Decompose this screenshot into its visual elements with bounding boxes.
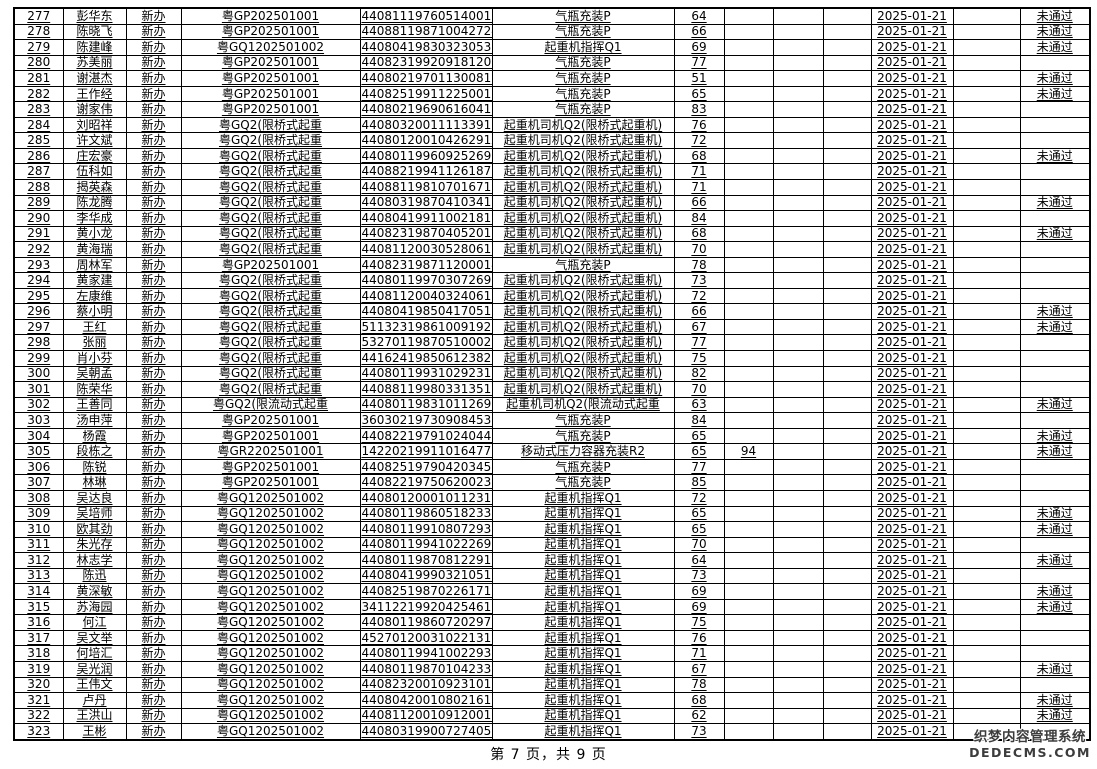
cell-result: 未通过	[1020, 522, 1090, 538]
cell-empty-1	[773, 117, 823, 133]
cell-date: 2025-01-21	[871, 211, 953, 227]
cell-empty-1	[773, 319, 823, 335]
cell-empty-2	[823, 553, 871, 569]
cell-cert-code: 粤GQ1202501002	[181, 630, 360, 646]
table-row: 302王善同新办粤GQ2(限流动式起重440801198310112699起重机…	[14, 397, 1090, 413]
cell-id-number: 440823198711200014	[360, 257, 492, 273]
cell-empty-2	[823, 319, 871, 335]
cell-id-number: 532701198705100025	[360, 335, 492, 351]
cell-id-number: 440881198107016716	[360, 180, 492, 196]
cell-theory-score: 70	[674, 537, 724, 553]
cell-id-number: 440801198607202978	[360, 615, 492, 631]
cell-name: 吴培师	[63, 506, 126, 522]
cell-apply-type: 新办	[126, 553, 181, 569]
cell-empty-1	[773, 553, 823, 569]
cell-result	[1020, 351, 1090, 367]
cell-project: 起重机司机Q2(限桥式起重机)	[492, 351, 674, 367]
cell-cert-code: 粤GQ2(限桥式起重	[181, 195, 360, 211]
cell-empty-2	[823, 522, 871, 538]
cell-row-number: 317	[14, 630, 63, 646]
cell-row-number: 282	[14, 86, 63, 102]
cell-id-number: 440801198310112699	[360, 397, 492, 413]
cell-date: 2025-01-21	[871, 40, 953, 56]
cell-row-number: 285	[14, 133, 63, 149]
cell-empty-3	[953, 459, 1020, 475]
cell-apply-type: 新办	[126, 164, 181, 180]
cell-practical-score	[724, 475, 773, 491]
table-row: 293周林军新办粤GP202501001440823198711200014气瓶…	[14, 257, 1090, 273]
cell-project: 起重机指挥Q1	[492, 693, 674, 709]
cell-empty-1	[773, 459, 823, 475]
cell-apply-type: 新办	[126, 708, 181, 724]
cell-cert-code: 粤GQ1202501002	[181, 584, 360, 600]
table-row: 311朱光存新办粤GQ1202501002440801199410222697起…	[14, 537, 1090, 553]
cell-practical-score	[724, 428, 773, 444]
cell-result	[1020, 273, 1090, 289]
cell-id-number: 440882199411261872	[360, 164, 492, 180]
cell-project: 气瓶充装P	[492, 71, 674, 87]
cell-apply-type: 新办	[126, 413, 181, 429]
cell-date: 2025-01-21	[871, 304, 953, 320]
cell-row-number: 302	[14, 397, 63, 413]
cell-theory-score: 72	[674, 288, 724, 304]
cell-cert-code: 粤GQ1202501002	[181, 615, 360, 631]
cell-row-number: 314	[14, 584, 63, 600]
cell-theory-score: 70	[674, 242, 724, 258]
cell-result: 未通过	[1020, 24, 1090, 40]
cell-name: 陈龙腾	[63, 195, 126, 211]
cell-empty-3	[953, 568, 1020, 584]
cell-empty-1	[773, 428, 823, 444]
cell-project: 气瓶充装P	[492, 428, 674, 444]
table-row: 304杨霞新办粤GP202501001440822197910240448气瓶充…	[14, 428, 1090, 444]
cell-empty-2	[823, 133, 871, 149]
cell-practical-score	[724, 273, 773, 289]
cell-name: 左康维	[63, 288, 126, 304]
cell-date: 2025-01-21	[871, 226, 953, 242]
cell-empty-1	[773, 693, 823, 709]
cell-date: 2025-01-21	[871, 273, 953, 289]
cell-id-number: 440822197910240448	[360, 428, 492, 444]
table-row: 301陈荣华新办粤GQ2(限桥式起重440881199803313516起重机司…	[14, 382, 1090, 398]
cell-id-number: 440803199007274051	[360, 724, 492, 740]
cell-row-number: 323	[14, 724, 63, 740]
cell-apply-type: 新办	[126, 24, 181, 40]
cell-empty-3	[953, 319, 1020, 335]
cell-result	[1020, 490, 1090, 506]
cell-cert-code: 粤GP202501001	[181, 428, 360, 444]
cell-empty-2	[823, 568, 871, 584]
cell-apply-type: 新办	[126, 288, 181, 304]
cell-apply-type: 新办	[126, 71, 181, 87]
cell-practical-score	[724, 8, 773, 24]
cell-empty-1	[773, 615, 823, 631]
cell-id-number: 440801198708122918	[360, 553, 492, 569]
cell-project: 起重机指挥Q1	[492, 724, 674, 740]
cell-empty-1	[773, 708, 823, 724]
cell-empty-3	[953, 397, 1020, 413]
cell-id-number: 440811197605140011	[360, 8, 492, 24]
cell-empty-1	[773, 288, 823, 304]
cell-practical-score	[724, 164, 773, 180]
cell-empty-2	[823, 304, 871, 320]
cell-id-number: 440804198504170511	[360, 304, 492, 320]
cell-apply-type: 新办	[126, 86, 181, 102]
cell-empty-1	[773, 568, 823, 584]
cell-date: 2025-01-21	[871, 319, 953, 335]
cell-date: 2025-01-21	[871, 366, 953, 382]
cell-id-number: 440803198704103413	[360, 195, 492, 211]
cell-theory-score: 68	[674, 148, 724, 164]
cell-id-number: 341122199204254613	[360, 599, 492, 615]
cell-apply-type: 新办	[126, 319, 181, 335]
cell-theory-score: 70	[674, 382, 724, 398]
cell-practical-score	[724, 86, 773, 102]
cell-practical-score	[724, 40, 773, 56]
cell-empty-2	[823, 646, 871, 662]
cell-date: 2025-01-21	[871, 568, 953, 584]
cell-cert-code: 粤GQ1202501002	[181, 724, 360, 740]
cell-date: 2025-01-21	[871, 646, 953, 662]
cell-id-number: 440811200305280615	[360, 242, 492, 258]
cell-result: 未通过	[1020, 148, 1090, 164]
cell-empty-2	[823, 599, 871, 615]
cell-apply-type: 新办	[126, 615, 181, 631]
cell-empty-2	[823, 444, 871, 460]
cell-practical-score	[724, 537, 773, 553]
cell-empty-2	[823, 584, 871, 600]
cell-empty-1	[773, 211, 823, 227]
cell-empty-3	[953, 475, 1020, 491]
cell-cert-code: 粤GQ2(限桥式起重	[181, 117, 360, 133]
cell-project: 起重机指挥Q1	[492, 537, 674, 553]
cell-id-number: 440823199209181203	[360, 55, 492, 71]
cell-name: 吴达良	[63, 490, 126, 506]
cell-result	[1020, 164, 1090, 180]
cell-empty-3	[953, 288, 1020, 304]
cell-empty-3	[953, 351, 1020, 367]
cell-empty-2	[823, 351, 871, 367]
cell-result	[1020, 677, 1090, 693]
cell-apply-type: 新办	[126, 382, 181, 398]
cell-row-number: 283	[14, 102, 63, 118]
cell-id-number: 440801199310292313	[360, 366, 492, 382]
cell-theory-score: 78	[674, 257, 724, 273]
cell-row-number: 295	[14, 288, 63, 304]
cell-theory-score: 63	[674, 397, 724, 413]
cms-watermark: 织梦内容管理系统 DEDECMS.COM	[969, 730, 1091, 760]
exam-results-table: 277彭华东新办粤GP202501001440811197605140011气瓶…	[13, 7, 1091, 741]
cell-practical-score	[724, 102, 773, 118]
cell-name: 王善同	[63, 397, 126, 413]
cell-project: 起重机指挥Q1	[492, 708, 674, 724]
cell-practical-score	[724, 257, 773, 273]
cell-empty-1	[773, 366, 823, 382]
cell-theory-score: 68	[674, 693, 724, 709]
cell-result: 未通过	[1020, 599, 1090, 615]
cell-empty-2	[823, 180, 871, 196]
table-row: 314黄深敏新办粤GQ1202501002440825198702261715起…	[14, 584, 1090, 600]
cell-empty-2	[823, 24, 871, 40]
cell-empty-2	[823, 630, 871, 646]
cell-practical-score	[724, 584, 773, 600]
cell-empty-1	[773, 630, 823, 646]
cell-id-number: 440804200108021610	[360, 693, 492, 709]
cell-apply-type: 新办	[126, 506, 181, 522]
table-row: 315苏海园新办粤GQ1202501002341122199204254613起…	[14, 599, 1090, 615]
cell-practical-score	[724, 304, 773, 320]
cell-name: 陈荣华	[63, 382, 126, 398]
cell-name: 揭英森	[63, 180, 126, 196]
cell-date: 2025-01-21	[871, 382, 953, 398]
cell-apply-type: 新办	[126, 661, 181, 677]
cell-empty-3	[953, 133, 1020, 149]
cell-empty-1	[773, 413, 823, 429]
cell-empty-2	[823, 677, 871, 693]
cell-theory-score: 85	[674, 475, 724, 491]
cell-name: 黄深敏	[63, 584, 126, 600]
cell-empty-2	[823, 475, 871, 491]
table-row: 288揭英森新办粤GQ2(限桥式起重440881198107016716起重机司…	[14, 180, 1090, 196]
cell-empty-3	[953, 522, 1020, 538]
cell-empty-3	[953, 24, 1020, 40]
cell-project: 起重机指挥Q1	[492, 40, 674, 56]
cell-practical-score	[724, 506, 773, 522]
cell-result	[1020, 180, 1090, 196]
cell-empty-2	[823, 226, 871, 242]
cell-theory-score: 75	[674, 351, 724, 367]
cell-row-number: 297	[14, 319, 63, 335]
cell-row-number: 293	[14, 257, 63, 273]
cell-empty-1	[773, 537, 823, 553]
cell-date: 2025-01-21	[871, 413, 953, 429]
cell-id-number: 440804198303230530	[360, 40, 492, 56]
cell-empty-3	[953, 8, 1020, 24]
cell-id-number: 440801199703072696	[360, 273, 492, 289]
cell-empty-3	[953, 117, 1020, 133]
table-row: 321卢丹新办粤GQ1202501002440804200108021610起重…	[14, 693, 1090, 709]
cell-theory-score: 65	[674, 428, 724, 444]
cell-empty-3	[953, 490, 1020, 506]
cell-empty-3	[953, 537, 1020, 553]
cell-empty-3	[953, 693, 1020, 709]
cell-row-number: 291	[14, 226, 63, 242]
cell-result: 未通过	[1020, 226, 1090, 242]
cell-empty-1	[773, 677, 823, 693]
table-row: 290李华成新办粤GQ2(限桥式起重440804199110021817起重机司…	[14, 211, 1090, 227]
cell-practical-score	[724, 661, 773, 677]
cell-apply-type: 新办	[126, 8, 181, 24]
cell-id-number: 440802197011300819	[360, 71, 492, 87]
cell-theory-score: 62	[674, 708, 724, 724]
cell-cert-code: 粤GQ1202501002	[181, 661, 360, 677]
cell-date: 2025-01-21	[871, 335, 953, 351]
cell-row-number: 284	[14, 117, 63, 133]
cell-project: 起重机司机Q2(限桥式起重机)	[492, 335, 674, 351]
cell-row-number: 278	[14, 24, 63, 40]
cell-theory-score: 73	[674, 273, 724, 289]
table-row: 323王彬新办粤GQ1202501002440803199007274051起重…	[14, 724, 1090, 740]
cell-theory-score: 69	[674, 599, 724, 615]
table-row: 312林志学新办粤GQ1202501002440801198708122918起…	[14, 553, 1090, 569]
cell-date: 2025-01-21	[871, 164, 953, 180]
cell-id-number: 440881199803313516	[360, 382, 492, 398]
cell-empty-3	[953, 506, 1020, 522]
cell-theory-score: 65	[674, 444, 724, 460]
cell-date: 2025-01-21	[871, 102, 953, 118]
cell-name: 王彬	[63, 724, 126, 740]
cell-date: 2025-01-21	[871, 397, 953, 413]
cell-empty-1	[773, 195, 823, 211]
cell-name: 王伟文	[63, 677, 126, 693]
cell-project: 起重机指挥Q1	[492, 646, 674, 662]
cell-name: 陈迅	[63, 568, 126, 584]
cell-empty-1	[773, 24, 823, 40]
cell-practical-score	[724, 71, 773, 87]
cell-empty-2	[823, 71, 871, 87]
cell-name: 吴光润	[63, 661, 126, 677]
cell-practical-score	[724, 319, 773, 335]
cell-cert-code: 粤GQ2(限桥式起重	[181, 180, 360, 196]
cell-row-number: 306	[14, 459, 63, 475]
cell-apply-type: 新办	[126, 148, 181, 164]
cell-name: 伍科如	[63, 164, 126, 180]
cell-apply-type: 新办	[126, 475, 181, 491]
table-row: 279陈建峰新办粤GQ1202501002440804198303230530起…	[14, 40, 1090, 56]
cell-id-number: 440825199112250017	[360, 86, 492, 102]
cell-empty-1	[773, 40, 823, 56]
cell-result: 未通过	[1020, 661, 1090, 677]
table-row: 317吴文举新办粤GQ1202501002452701200310221316起…	[14, 630, 1090, 646]
cell-result	[1020, 459, 1090, 475]
cell-row-number: 318	[14, 646, 63, 662]
cell-id-number: 360302197309084533	[360, 413, 492, 429]
cell-project: 起重机指挥Q1	[492, 490, 674, 506]
cell-date: 2025-01-21	[871, 661, 953, 677]
cell-empty-3	[953, 164, 1020, 180]
cell-apply-type: 新办	[126, 677, 181, 693]
cell-empty-3	[953, 413, 1020, 429]
cell-row-number: 299	[14, 351, 63, 367]
cell-cert-code: 粤GP202501001	[181, 24, 360, 40]
cell-apply-type: 新办	[126, 40, 181, 56]
watermark-cms-domain: DEDECMS.COM	[969, 745, 1091, 760]
cell-empty-1	[773, 522, 823, 538]
table-row: 277彭华东新办粤GP202501001440811197605140011气瓶…	[14, 8, 1090, 24]
cell-project: 起重机指挥Q1	[492, 506, 674, 522]
cell-cert-code: 粤GP202501001	[181, 459, 360, 475]
cell-row-number: 294	[14, 273, 63, 289]
cell-date: 2025-01-21	[871, 180, 953, 196]
cell-practical-score	[724, 24, 773, 40]
cell-id-number: 440823198704052017	[360, 226, 492, 242]
cell-result	[1020, 211, 1090, 227]
table-row: 292黄海瑞新办粤GQ2(限桥式起重440811200305280615起重机司…	[14, 242, 1090, 258]
cell-result: 未通过	[1020, 8, 1090, 24]
cell-empty-1	[773, 148, 823, 164]
cell-name: 汤申萍	[63, 413, 126, 429]
cell-project: 起重机司机Q2(限桥式起重机)	[492, 211, 674, 227]
cell-theory-score: 84	[674, 211, 724, 227]
cell-cert-code: 粤GQ1202501002	[181, 599, 360, 615]
table-row: 296蔡小明新办粤GQ2(限桥式起重440804198504170511起重机司…	[14, 304, 1090, 320]
cell-practical-score	[724, 288, 773, 304]
cell-project: 气瓶充装P	[492, 475, 674, 491]
cell-project: 起重机司机Q2(限桥式起重机)	[492, 180, 674, 196]
cell-empty-3	[953, 382, 1020, 398]
cell-empty-1	[773, 475, 823, 491]
cell-empty-2	[823, 102, 871, 118]
cell-practical-score	[724, 724, 773, 740]
cell-row-number: 289	[14, 195, 63, 211]
cell-project: 气瓶充装P	[492, 24, 674, 40]
cell-row-number: 287	[14, 164, 63, 180]
cell-practical-score	[724, 55, 773, 71]
cell-date: 2025-01-21	[871, 630, 953, 646]
cell-result	[1020, 288, 1090, 304]
cell-id-number: 440802196906160410	[360, 102, 492, 118]
cell-result	[1020, 133, 1090, 149]
cell-date: 2025-01-21	[871, 475, 953, 491]
cell-project: 移动式压力容器充装R2	[492, 444, 674, 460]
cell-empty-3	[953, 444, 1020, 460]
cell-row-number: 315	[14, 599, 63, 615]
cell-name: 蔡小明	[63, 304, 126, 320]
cell-practical-score	[724, 646, 773, 662]
cell-cert-code: 粤GQ2(限桥式起重	[181, 382, 360, 398]
cell-theory-score: 64	[674, 553, 724, 569]
cell-apply-type: 新办	[126, 335, 181, 351]
cell-date: 2025-01-21	[871, 242, 953, 258]
cell-empty-1	[773, 335, 823, 351]
cell-empty-1	[773, 102, 823, 118]
cell-empty-2	[823, 382, 871, 398]
cell-project: 起重机司机Q2(限桥式起重机)	[492, 382, 674, 398]
cell-empty-1	[773, 133, 823, 149]
cell-date: 2025-01-21	[871, 8, 953, 24]
cell-empty-2	[823, 164, 871, 180]
cell-result: 未通过	[1020, 428, 1090, 444]
cell-name: 刘昭祥	[63, 117, 126, 133]
cell-row-number: 313	[14, 568, 63, 584]
cell-apply-type: 新办	[126, 117, 181, 133]
cell-row-number: 312	[14, 553, 63, 569]
cell-row-number: 320	[14, 677, 63, 693]
table-row: 319吴光润新办粤GQ1202501002440801198701042333起…	[14, 661, 1090, 677]
cell-row-number: 304	[14, 428, 63, 444]
table-row: 299肖小芬新办粤GQ2(限桥式起重441624198506123829起重机司…	[14, 351, 1090, 367]
cell-theory-score: 71	[674, 646, 724, 662]
cell-theory-score: 65	[674, 86, 724, 102]
cell-project: 起重机司机Q2(限流动式起重	[492, 397, 674, 413]
cell-name: 肖小芬	[63, 351, 126, 367]
cell-date: 2025-01-21	[871, 490, 953, 506]
cell-empty-2	[823, 506, 871, 522]
cell-date: 2025-01-21	[871, 24, 953, 40]
cell-empty-2	[823, 8, 871, 24]
cell-theory-score: 67	[674, 661, 724, 677]
cell-cert-code: 粤GP202501001	[181, 413, 360, 429]
cell-theory-score: 75	[674, 615, 724, 631]
cell-practical-score	[724, 382, 773, 398]
cell-id-number: 440822197506200233	[360, 475, 492, 491]
cell-date: 2025-01-21	[871, 459, 953, 475]
cell-cert-code: 粤GQ1202501002	[181, 490, 360, 506]
cell-id-number: 440804199110021817	[360, 211, 492, 227]
cell-empty-2	[823, 257, 871, 273]
cell-name: 谢家伟	[63, 102, 126, 118]
cell-id-number: 440811200403240617	[360, 288, 492, 304]
